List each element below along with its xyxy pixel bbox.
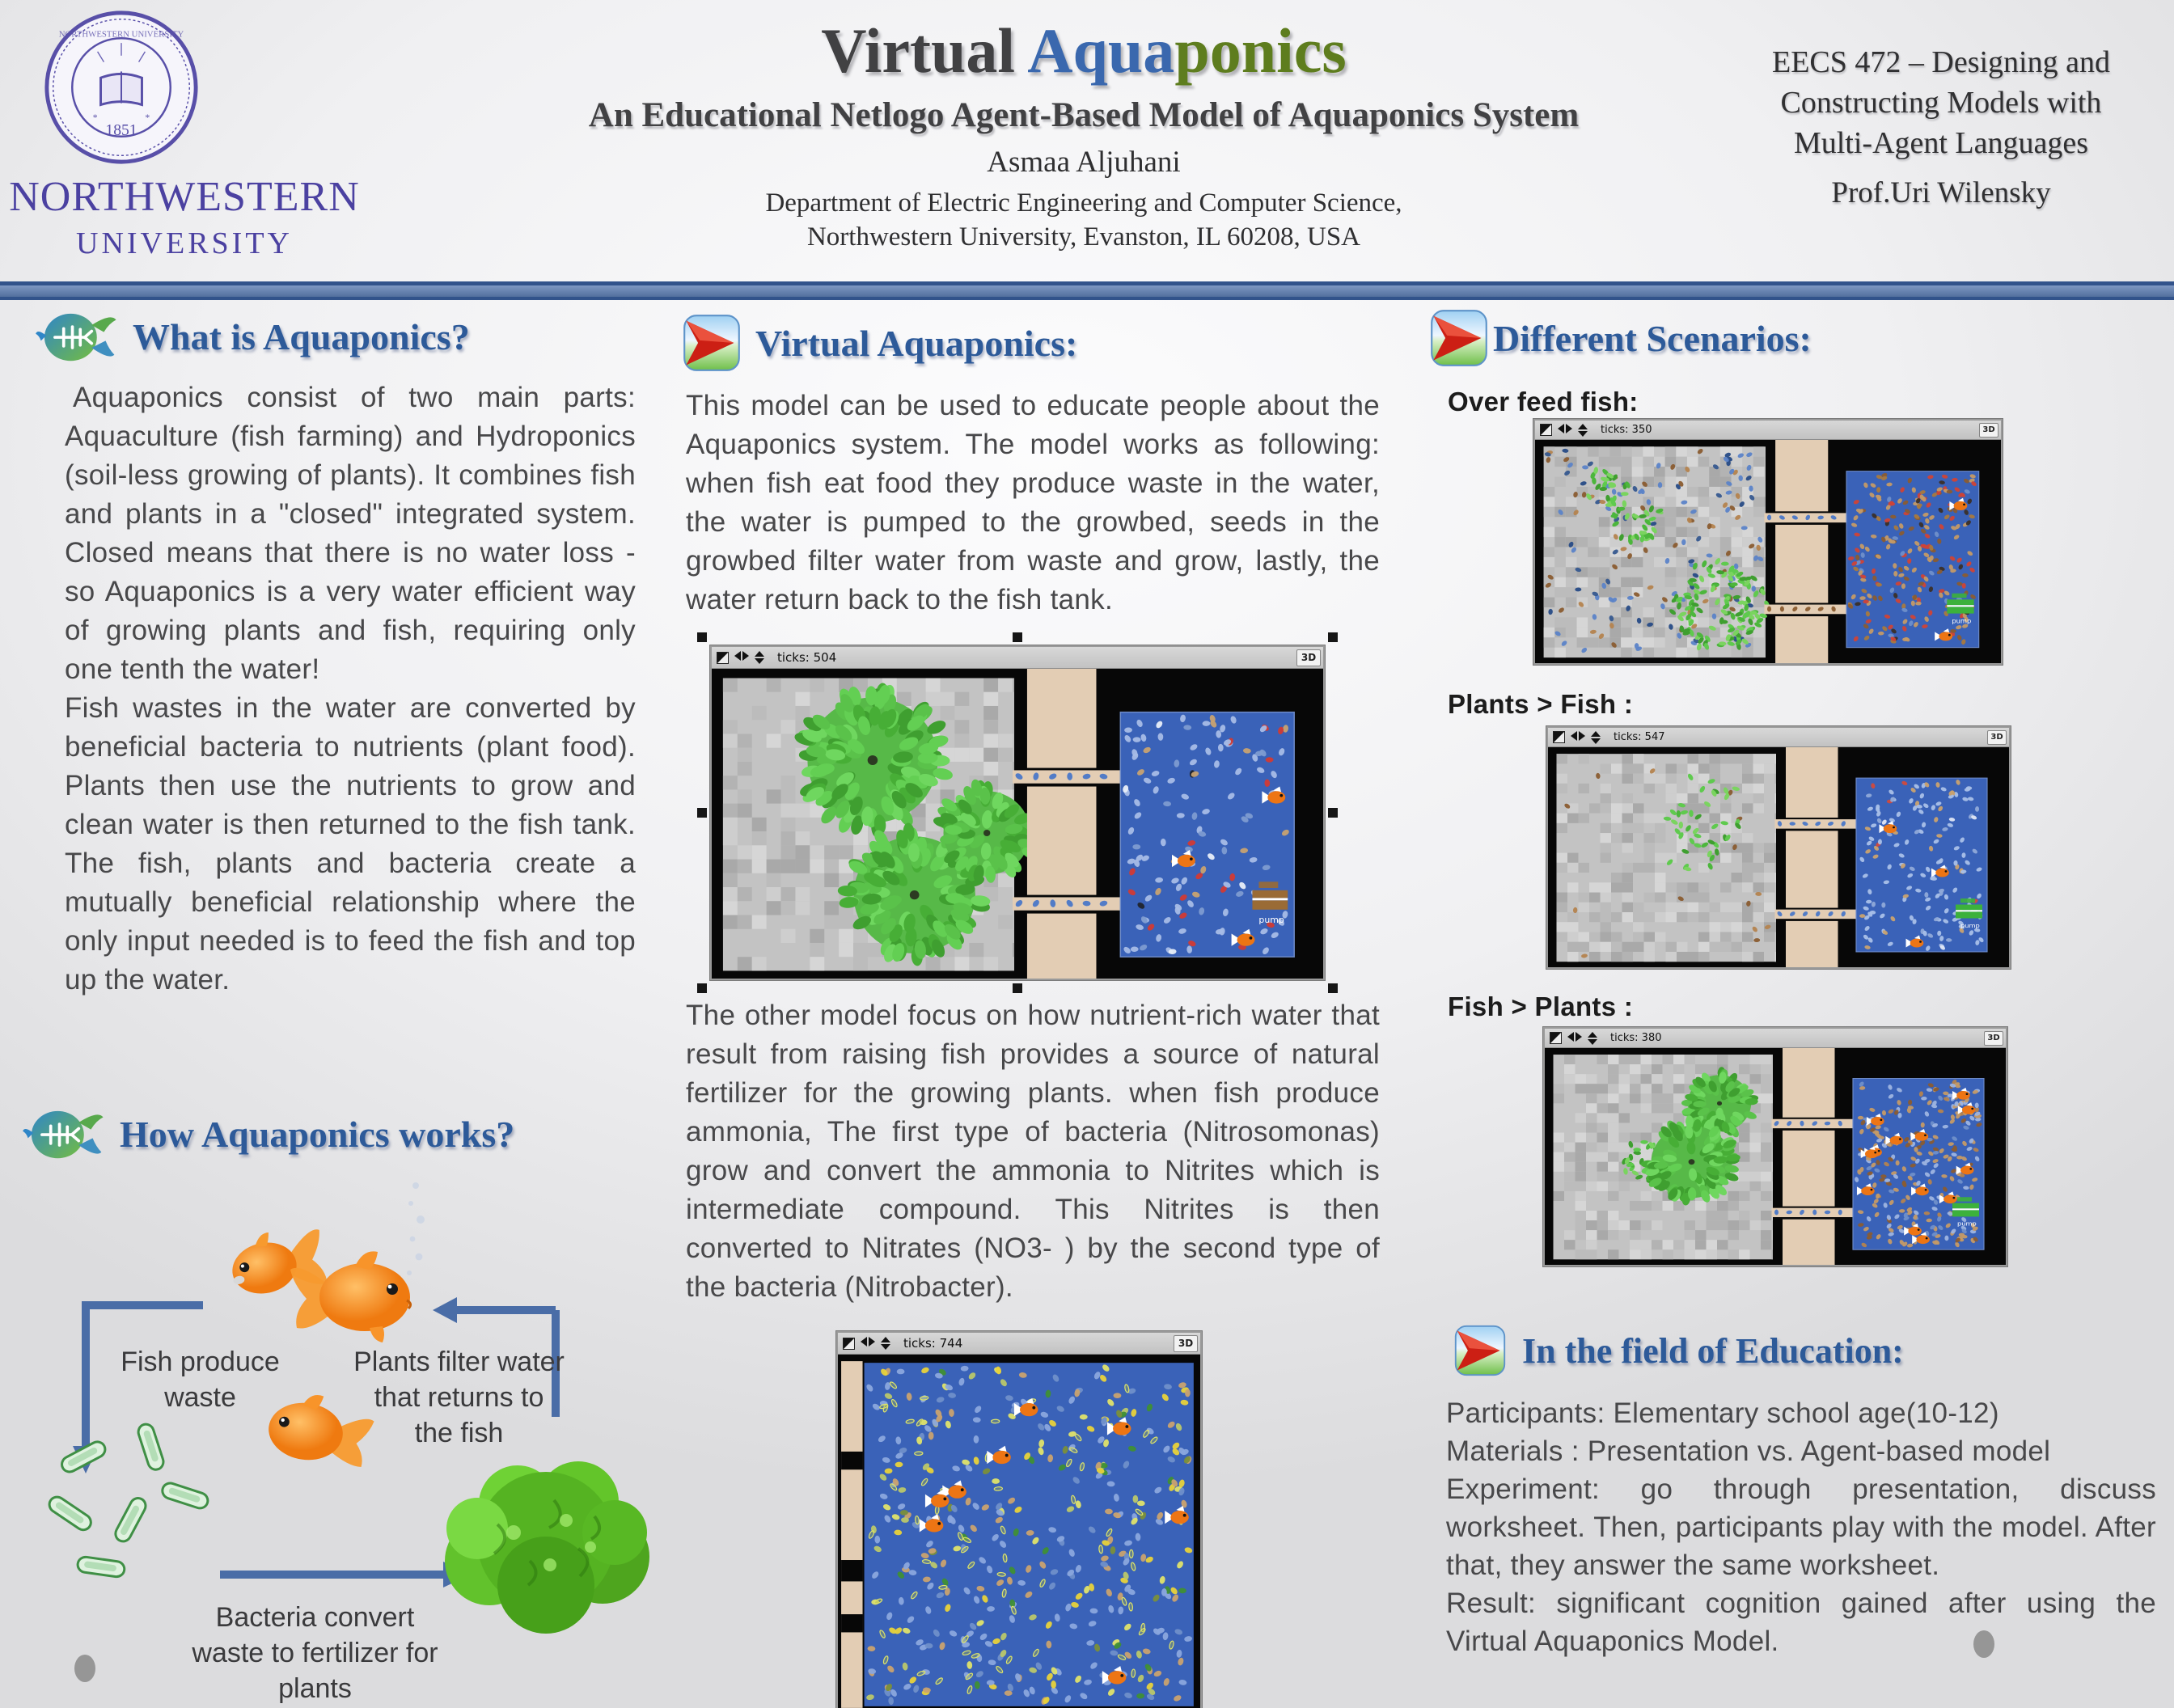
netlogo-titlebar: ticks: 504 3D [712, 647, 1323, 669]
label-fish-produce-waste: Fish produce waste [113, 1344, 287, 1415]
what-paragraph-2: Fish wastes in the water are converted b… [65, 689, 636, 1000]
netlogo-titlebar: ticks: 350 3D [1535, 421, 2001, 440]
svg-text:pump: pump [1960, 922, 1980, 929]
course-block: EECS 472 – Designing and Constructing Mo… [1708, 42, 2174, 213]
view-3d-button: 3D [1984, 1031, 2003, 1046]
netlogo-view: pump [1545, 1048, 2006, 1265]
netlogo-vertical-arrows-icon [1591, 731, 1601, 744]
section-title-scenarios: Different Scenarios: [1493, 317, 1812, 360]
course-line2: Constructing Models with [1708, 82, 2174, 123]
netlogo-speed-icon [1553, 731, 1565, 743]
svg-text:1851: 1851 [105, 122, 137, 139]
netlogo-view [838, 1355, 1200, 1708]
nu-wordmark-line1: NORTHWESTERN [6, 173, 362, 221]
flag-bullet-icon [1428, 307, 1490, 369]
education-line-participants: Participants: Elementary school age(10-1… [1446, 1394, 2156, 1432]
label-plants-filter: Plants filter water that returns to the … [352, 1344, 566, 1451]
header-divider [0, 281, 2174, 300]
poster-title-aqua: Aqua [1027, 15, 1174, 86]
scenario-label-overfeed: Over feed fish: [1448, 387, 1639, 417]
ticks-counter: ticks: 504 [777, 650, 836, 665]
what-is-aquaponics-text: Aquaponics consist of two main parts: Aq… [65, 378, 636, 1000]
netlogo-view: pump [1548, 747, 2009, 967]
netlogo-horizontal-arrows-icon [1558, 423, 1572, 438]
course-line3: Multi-Agent Languages [1708, 123, 2174, 163]
netlogo-speed-icon [717, 652, 729, 664]
netlogo-view: pump [1535, 440, 2001, 663]
view-3d-button: 3D [1174, 1335, 1198, 1352]
lettuce-image [445, 1461, 649, 1634]
netlogo-horizontal-arrows-icon [734, 650, 749, 665]
ticks-counter: ticks: 350 [1601, 424, 1652, 436]
section-title-what: What is Aquaponics? [133, 315, 470, 358]
svg-text:*: * [93, 112, 98, 123]
netlogo-window-model2: ticks: 744 3D [836, 1331, 1202, 1708]
education-line-result: Result: significant cognition gained aft… [1446, 1584, 2156, 1660]
netlogo-view: pump [712, 669, 1323, 979]
section-title-how: How Aquaponics works? [120, 1113, 514, 1156]
header-title-block: Virtual Aquaponics An Educational Netlog… [501, 15, 1666, 254]
svg-text:pump: pump [1957, 1220, 1977, 1227]
netlogo-window-model1: ticks: 504 3D pump [710, 645, 1325, 980]
education-text: Participants: Elementary school age(10-1… [1446, 1394, 2156, 1660]
scenario-label-fish-gt-plants: Fish > Plants : [1448, 991, 1633, 1022]
netlogo-titlebar: ticks: 744 3D [838, 1333, 1200, 1355]
education-line-materials: Materials : Presentation vs. Agent-based… [1446, 1432, 2156, 1470]
label-bacteria-convert: Bacteria convert waste to fertilizer for… [180, 1600, 450, 1706]
netlogo-horizontal-arrows-icon [861, 1336, 875, 1351]
flag-bullet-icon [681, 312, 742, 374]
education-line-experiment: Experiment: go through presentation, dis… [1446, 1470, 2156, 1584]
section-virtual-aquaponics: Virtual Aquaponics: [681, 312, 1077, 374]
professor-name: Prof.Uri Wilensky [1708, 173, 2174, 213]
bacteria-image [46, 1423, 209, 1578]
netlogo-speed-icon [843, 1338, 855, 1350]
svg-text:NORTHWESTERN UNIVERSITY: NORTHWESTERN UNIVERSITY [59, 29, 184, 39]
department-line2: Northwestern University, Evanston, IL 60… [501, 220, 1666, 254]
netlogo-window-scenario-fish: ticks: 380 3D pump [1543, 1027, 2007, 1266]
netlogo-titlebar: ticks: 380 3D [1545, 1029, 2006, 1048]
scenario-label-plants-gt-fish: Plants > Fish : [1448, 689, 1633, 720]
view-3d-button: 3D [1979, 423, 1998, 438]
netlogo-vertical-arrows-icon [755, 651, 764, 664]
netlogo-horizontal-arrows-icon [1571, 730, 1585, 745]
section-how-aquaponics-works: How Aquaponics works? [21, 1103, 514, 1165]
virtual-aquaponics-paragraph-1: This model can be used to educate people… [686, 387, 1380, 619]
northwestern-wordmark: NORTHWESTERN UNIVERSITY [6, 173, 362, 261]
svg-text:pump: pump [1952, 618, 1971, 625]
netlogo-vertical-arrows-icon [1588, 1032, 1597, 1045]
svg-text:pump: pump [1258, 915, 1284, 925]
ticks-counter: ticks: 547 [1614, 731, 1664, 743]
section-different-scenarios: Different Scenarios: [1428, 307, 1812, 369]
ticks-counter: ticks: 380 [1610, 1032, 1661, 1044]
what-paragraph-1: Aquaponics consist of two main parts: Aq… [65, 378, 636, 689]
view-3d-button: 3D [1296, 649, 1321, 666]
netlogo-vertical-arrows-icon [881, 1337, 890, 1350]
netlogo-window-scenario-plants: ticks: 547 3D pump [1546, 726, 2011, 969]
view-3d-button: 3D [1987, 730, 2007, 745]
netlogo-horizontal-arrows-icon [1567, 1031, 1582, 1046]
fish-logo-icon [34, 306, 121, 367]
netlogo-speed-icon [1550, 1032, 1562, 1044]
virtual-aquaponics-paragraph-2: The other model focus on how nutrient-ri… [686, 996, 1380, 1307]
svg-text:*: * [145, 112, 150, 123]
section-field-of-education: In the field of Education: [1453, 1323, 1904, 1378]
ticks-counter: ticks: 744 [903, 1336, 962, 1351]
author-name: Asmaa Aljuhani [501, 145, 1666, 180]
flag-bullet-icon [1453, 1323, 1508, 1378]
netlogo-speed-icon [1540, 424, 1552, 436]
netlogo-vertical-arrows-icon [1578, 424, 1588, 437]
netlogo-titlebar: ticks: 547 3D [1548, 728, 2009, 747]
poster-title-ponics: ponics [1174, 15, 1346, 86]
fish-logo-icon [21, 1103, 108, 1165]
poster-title-virtual: Virtual [821, 15, 1027, 86]
section-what-is-aquaponics: What is Aquaponics? [34, 306, 470, 367]
course-line1: EECS 472 – Designing and [1708, 42, 2174, 82]
department-line1: Department of Electric Engineering and C… [501, 186, 1666, 220]
netlogo-window-scenario-overfeed: ticks: 350 3D pump [1533, 419, 2003, 665]
poster-subtitle: An Educational Netlogo Agent-Based Model… [501, 95, 1666, 135]
section-title-education: In the field of Education: [1522, 1330, 1904, 1372]
poster: 1851 NORTHWESTERN UNIVERSITY ** NORTHWES… [0, 0, 2174, 1708]
decorative-dot [74, 1655, 95, 1682]
poster-title: Virtual Aquaponics [501, 15, 1666, 87]
section-title-virtual: Virtual Aquaponics: [755, 322, 1077, 365]
northwestern-seal-icon: 1851 NORTHWESTERN UNIVERSITY ** [42, 8, 201, 167]
nu-wordmark-line2: UNIVERSITY [6, 226, 362, 261]
